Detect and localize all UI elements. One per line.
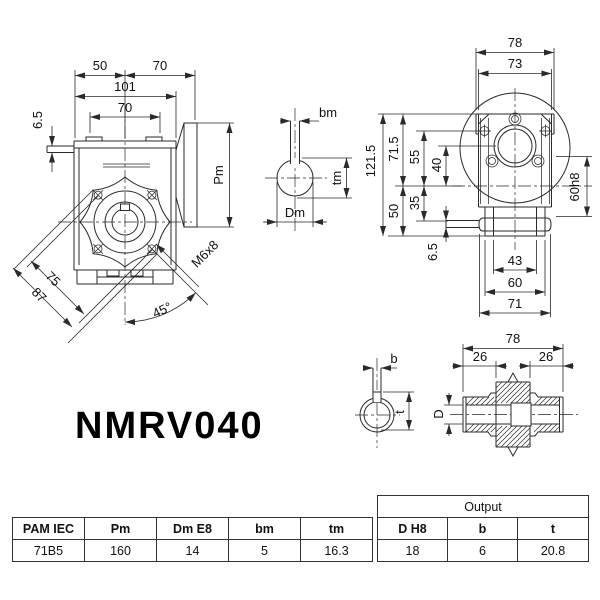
thread-callout-m6x8: M6x8 xyxy=(188,237,221,270)
dim-55: 55 xyxy=(407,150,422,164)
header-tm: tm xyxy=(301,518,373,540)
dim-71: 71 xyxy=(508,296,522,311)
dim-t: t xyxy=(392,410,407,414)
value-b: 6 xyxy=(448,540,518,562)
dim-75: 75 xyxy=(43,268,64,289)
dim-121-5: 121.5 xyxy=(363,145,378,178)
dim-70-bolt: 70 xyxy=(118,100,132,115)
dim-70-top: 70 xyxy=(153,58,167,73)
dim-40: 40 xyxy=(429,158,444,172)
dim-35: 35 xyxy=(407,196,422,210)
dim-bm: bm xyxy=(319,105,337,120)
output-group-header: Output xyxy=(378,496,589,518)
dim-43: 43 xyxy=(508,253,522,268)
output-dimensions-table: Output D H8 b t 18 6 20.8 xyxy=(377,495,589,562)
output-bore-detail: b t 78 26 26 D xyxy=(355,331,578,456)
dim-50: 50 xyxy=(93,58,107,73)
dim-78-output: 78 xyxy=(506,331,520,346)
value-d-h8: 18 xyxy=(378,540,448,562)
dim-6-5-front: 6.5 xyxy=(30,111,45,129)
model-title: NMRV040 xyxy=(75,405,264,448)
table-header-row: PAM IEC Pm Dm E8 bm tm xyxy=(13,518,373,540)
value-pm: 160 xyxy=(85,540,157,562)
dim-b: b xyxy=(390,351,397,366)
dim-tm: tm xyxy=(329,171,344,185)
dim-71-5: 71.5 xyxy=(386,136,401,161)
table-header-row: D H8 b t xyxy=(378,518,589,540)
dim-60h8: 60h8 xyxy=(567,173,582,202)
dim-26-left: 26 xyxy=(473,349,487,364)
header-t: t xyxy=(518,518,589,540)
gearbox-dimension-sheet: 50 70 101 70 6.5 Pm M6x8 75 87 45° bm tm… xyxy=(0,0,600,600)
header-b: b xyxy=(448,518,518,540)
value-t: 20.8 xyxy=(518,540,589,562)
dim-d: D xyxy=(431,409,446,418)
dim-87: 87 xyxy=(29,284,50,305)
value-tm: 16.3 xyxy=(301,540,373,562)
input-shaft-detail: bm tm Dm xyxy=(263,105,352,232)
table-row: 71B5 160 14 5 16.3 xyxy=(13,540,373,562)
output-group-row: Output xyxy=(378,496,589,518)
side-view: 78 73 121.5 71.5 55 40 50 35 6.5 60h8 43… xyxy=(363,35,592,317)
value-pam-iec: 71B5 xyxy=(13,540,85,562)
dim-101: 101 xyxy=(114,79,136,94)
value-dm-e8: 14 xyxy=(157,540,229,562)
dim-78-side: 78 xyxy=(508,35,522,50)
table-row: 18 6 20.8 xyxy=(378,540,589,562)
dim-60: 60 xyxy=(508,275,522,290)
pam-dimensions-table: PAM IEC Pm Dm E8 bm tm 71B5 160 14 5 16.… xyxy=(12,517,373,562)
dim-73: 73 xyxy=(508,56,522,71)
dim-26-right: 26 xyxy=(539,349,553,364)
header-bm: bm xyxy=(229,518,301,540)
header-pm: Pm xyxy=(85,518,157,540)
dim-dm: Dm xyxy=(285,205,305,220)
dim-pm: Pm xyxy=(211,165,226,185)
header-d-h8: D H8 xyxy=(378,518,448,540)
header-pam-iec: PAM IEC xyxy=(13,518,85,540)
header-dm-e8: Dm E8 xyxy=(157,518,229,540)
front-view: 50 70 101 70 6.5 Pm M6x8 75 87 45° xyxy=(13,58,234,343)
dim-6-5-side: 6.5 xyxy=(425,243,440,261)
value-bm: 5 xyxy=(229,540,301,562)
dim-50-side: 50 xyxy=(386,204,401,218)
